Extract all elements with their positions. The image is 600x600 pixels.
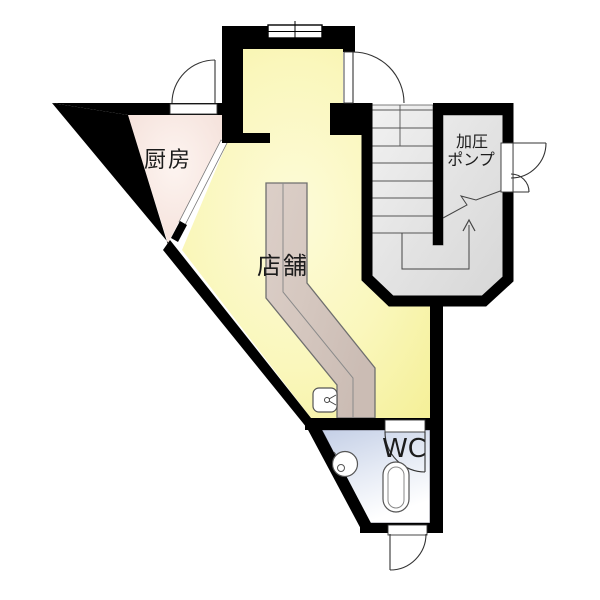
- shop-left-stub-wall: [222, 133, 270, 143]
- shop-left-wall: [222, 26, 243, 133]
- pump-door-opening: [501, 143, 513, 192]
- pump-room-label-line1: 加圧: [456, 132, 488, 151]
- shop-landing-door-opening: [344, 52, 353, 103]
- wc-door-opening: [385, 420, 425, 432]
- wc-label: WC: [382, 434, 426, 464]
- toilet-icon: [383, 462, 409, 512]
- floor-plan-canvas: 厨房 店舗 加圧 ポンプ WC: [0, 0, 600, 600]
- pump-room-label-line2: ポンプ: [447, 150, 495, 169]
- kitchen-door-opening: [170, 104, 217, 114]
- wc-hand-basin: [333, 452, 358, 477]
- shop-right-wall: [343, 26, 355, 52]
- shop-label: 店舗: [257, 252, 309, 280]
- counter-sink: [313, 388, 337, 412]
- stair-divider-wall: [433, 103, 443, 245]
- bottom-door-opening: [388, 525, 427, 535]
- pump-room-top-wall: [433, 103, 512, 115]
- east-wall: [430, 303, 443, 533]
- floor-plan-drawing: 厨房 店舗 加圧 ポンプ WC: [0, 0, 600, 600]
- kitchen-label: 厨房: [144, 148, 192, 173]
